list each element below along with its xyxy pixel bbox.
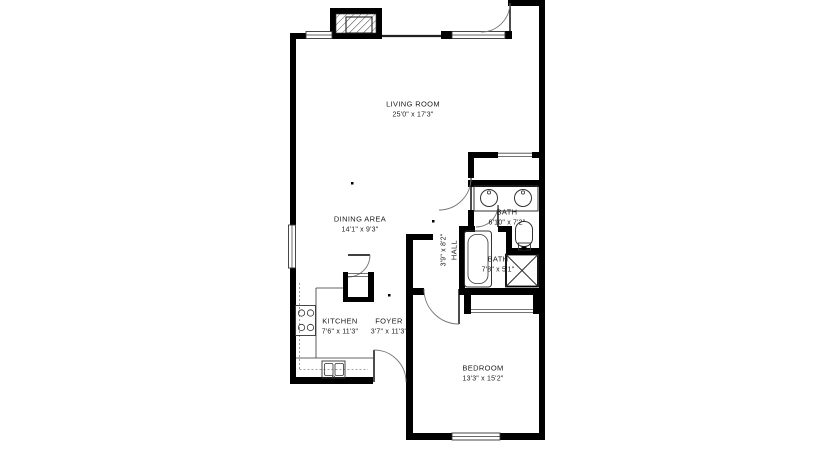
room-name: FOYER [371, 317, 407, 328]
window-bedroom [452, 433, 500, 440]
window-top-left [306, 32, 332, 39]
room-label-dining-area: DINING AREA 14'1" x 9'3" [334, 215, 386, 236]
door-unit-entry [374, 350, 406, 382]
door-bath-vestibule [439, 178, 471, 210]
floorplan-canvas: LIVING ROOM 25'0" x 17'3" DINING AREA 14… [0, 0, 835, 467]
bedroom-closet-slider [471, 310, 533, 313]
room-dimensions: 3'7" x 11'3" [371, 328, 407, 338]
door-bedroom [424, 289, 459, 324]
room-dimensions: 7'8" x 5'1" [482, 266, 515, 276]
room-label-bedroom: BEDROOM 13'3" x 15'2" [462, 364, 503, 385]
room-name: KITCHEN [322, 317, 358, 328]
room-label-bath-lower: BATH 7'8" x 5'1" [482, 255, 515, 276]
room-dimensions: 6'10" x 7'2" [489, 219, 526, 229]
room-dimensions: 14'1" x 9'3" [334, 226, 386, 236]
window-top-right [452, 32, 505, 39]
room-name: BATH [489, 208, 526, 219]
floor-plan-drawing [0, 0, 835, 467]
room-name: DINING AREA [334, 215, 386, 226]
room-name: LIVING ROOM [386, 100, 440, 111]
room-name: BEDROOM [462, 364, 503, 375]
fireplace-icon [336, 14, 376, 33]
door-living-room-entry [481, 3, 510, 32]
room-label-hall-dims: 3'9" x 8'2" [441, 234, 448, 267]
room-dimensions: 25'0" x 17'3" [386, 111, 440, 121]
living-room-closet-slider [498, 153, 532, 156]
window-dining-left [289, 225, 296, 268]
room-label-kitchen: KITCHEN 7'6" x 11'3" [322, 317, 358, 338]
room-name: BATH [482, 255, 515, 266]
room-label-hall-name: HALL [450, 240, 459, 260]
stove-icon [296, 306, 316, 336]
room-dimensions: 13'3" x 15'2" [462, 375, 503, 385]
room-dimensions: 7'6" x 11'3" [322, 328, 358, 338]
room-label-foyer: FOYER 3'7" x 11'3" [371, 317, 407, 338]
room-label-bath-upper: BATH 6'10" x 7'2" [489, 208, 526, 229]
room-label-living-room: LIVING ROOM 25'0" x 17'3" [386, 100, 440, 121]
